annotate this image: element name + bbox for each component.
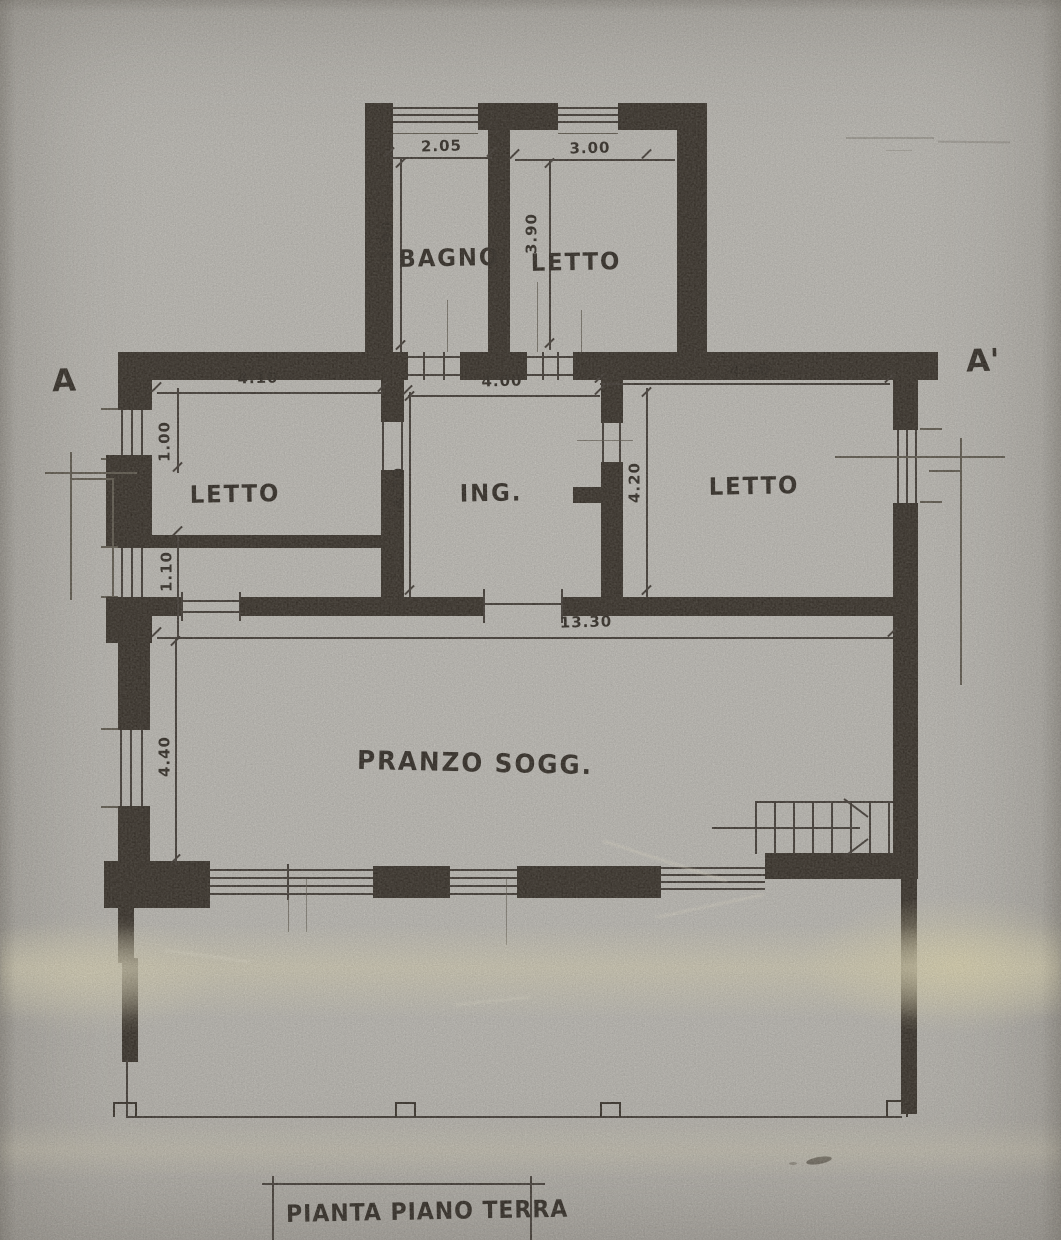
paper-edge-shadow bbox=[1041, 0, 1061, 1240]
door-letto-top-line bbox=[527, 356, 573, 358]
section-line-right bbox=[835, 456, 1005, 458]
dim-line bbox=[157, 637, 893, 639]
ink-smudge bbox=[789, 1162, 797, 1165]
section-line-right bbox=[929, 470, 962, 472]
paper-crease bbox=[165, 949, 249, 963]
extension-line bbox=[306, 879, 307, 932]
sheet-title: PIANTA PIANO TERRA bbox=[286, 1195, 569, 1228]
wall-pranzo-north-left bbox=[240, 597, 483, 616]
window-left-1-line bbox=[131, 410, 133, 460]
extension-line bbox=[288, 898, 289, 932]
section-line-right bbox=[960, 438, 962, 685]
window-left-1-sill bbox=[101, 408, 118, 410]
door-bagno-line bbox=[408, 374, 460, 376]
wall-left-terrace-2 bbox=[122, 958, 138, 1062]
window-right-line bbox=[915, 430, 917, 503]
window-left-2-line bbox=[141, 548, 143, 598]
terrace-post bbox=[113, 1102, 137, 1117]
dim-line bbox=[175, 637, 177, 866]
window-left-2-sill bbox=[101, 546, 118, 548]
wall-left-1 bbox=[118, 352, 152, 410]
paper-edge-shadow bbox=[0, 0, 16, 1240]
extension-line bbox=[537, 282, 538, 352]
paper-crease bbox=[455, 996, 530, 1006]
wall-left-terrace-1 bbox=[118, 905, 134, 963]
window-bagno-line bbox=[393, 121, 478, 123]
dim-line bbox=[600, 383, 890, 385]
ink-smudge bbox=[806, 1155, 833, 1166]
window-bagno-sill bbox=[393, 133, 478, 134]
window-letto-top-line bbox=[558, 114, 618, 116]
dim-line bbox=[177, 535, 179, 638]
opening-ing-pranzo-jamb bbox=[483, 589, 485, 623]
section-marker-a: A bbox=[51, 366, 76, 398]
window-left-1-line bbox=[141, 410, 143, 460]
extension-line bbox=[447, 300, 448, 352]
window-bottom-1-mullion bbox=[287, 864, 289, 900]
dim-letto-top-width: 3.00 bbox=[562, 140, 618, 156]
wall-right-lower bbox=[901, 879, 917, 1114]
dim-tick bbox=[641, 149, 652, 160]
room-label-letto-right: LETTO bbox=[706, 473, 801, 499]
window-bagno-line bbox=[393, 107, 478, 109]
window-letto-top-line bbox=[558, 107, 618, 109]
stairs-top-edge bbox=[755, 801, 893, 803]
wall-extension-top-center bbox=[478, 103, 558, 130]
room-label-letto-top: LETTO bbox=[528, 249, 623, 275]
title-box-left bbox=[272, 1176, 274, 1240]
wall-bottom-1 bbox=[373, 866, 450, 898]
terrace-post bbox=[395, 1102, 416, 1117]
wall-bottom-2 bbox=[517, 866, 661, 898]
wall-corner-bottom-left bbox=[104, 861, 210, 908]
window-bottom-3-line bbox=[661, 867, 765, 869]
window-bottom-1-line bbox=[210, 869, 373, 871]
door-bagno-jamb bbox=[443, 352, 445, 380]
wall-left-3 bbox=[118, 806, 150, 868]
window-left-3-line bbox=[130, 730, 132, 808]
wall-bagno-letto-divider bbox=[488, 130, 510, 352]
dim-line bbox=[408, 395, 600, 397]
paper-crease bbox=[0, 1120, 1061, 1180]
stair-tread bbox=[869, 801, 871, 854]
window-bottom-1-line bbox=[210, 885, 373, 887]
paper-crease bbox=[656, 894, 764, 919]
wall-extension-right bbox=[677, 103, 707, 355]
window-right-sill bbox=[920, 428, 942, 430]
dim-letto-right-width: 4.90 bbox=[718, 362, 782, 379]
section-line-left bbox=[112, 478, 114, 596]
dim-pranzo-depth: 4.40 bbox=[158, 734, 173, 780]
wall-extension-top-right bbox=[618, 103, 678, 130]
window-bottom-3-line bbox=[661, 888, 765, 890]
dim-tick bbox=[151, 627, 162, 638]
wall-pranzo-north-right bbox=[563, 597, 917, 616]
dim-line bbox=[409, 392, 411, 597]
window-left-3-sill bbox=[101, 806, 118, 808]
pencil-mark bbox=[886, 150, 912, 151]
window-left-3-sill bbox=[101, 728, 118, 730]
dim-letto-left-width: 4.10 bbox=[226, 370, 290, 387]
dim-bagno-depth: 3.90 bbox=[381, 218, 396, 264]
pencil-mark bbox=[846, 137, 934, 139]
window-letto-top-sill bbox=[558, 133, 618, 134]
stair-arrow-shaft bbox=[712, 827, 860, 829]
window-bottom-1-line bbox=[210, 893, 373, 895]
section-line-left bbox=[72, 478, 114, 480]
wall-ing-letto-right-lower bbox=[601, 462, 623, 597]
window-right-sill bbox=[920, 501, 942, 503]
section-marker-a-prime: A' bbox=[965, 345, 1000, 377]
window-right-line bbox=[906, 430, 908, 503]
dim-line bbox=[157, 392, 383, 394]
extension-line bbox=[577, 440, 633, 441]
extension-line bbox=[506, 879, 507, 945]
door-letto-top-jamb bbox=[557, 352, 559, 380]
door-pranzo-jamb bbox=[181, 592, 183, 621]
section-line-left bbox=[70, 452, 72, 600]
dim-letto-right-depth: 4.20 bbox=[628, 460, 643, 506]
dim-ingresso-depth: 4.20 bbox=[392, 465, 407, 511]
window-left-3-line bbox=[120, 730, 122, 808]
window-bagno-line bbox=[393, 114, 478, 116]
window-bottom-1-line bbox=[210, 877, 373, 879]
wall-ing-stub bbox=[573, 487, 601, 503]
door-letto-left-line bbox=[382, 422, 384, 470]
door-bagno-line bbox=[408, 356, 460, 358]
door-letto-left-line bbox=[401, 422, 403, 470]
paper-edge-shadow bbox=[0, 0, 1061, 12]
dim-line bbox=[646, 388, 648, 597]
section-line-left bbox=[45, 472, 137, 474]
window-right-line bbox=[897, 430, 899, 503]
window-bottom-3-line bbox=[661, 874, 765, 876]
terrace-bottom-edge bbox=[126, 1116, 902, 1118]
terrace-post bbox=[886, 1100, 908, 1117]
room-label-bagno: BAGNO bbox=[398, 245, 490, 271]
room-label-letto-left: LETTO bbox=[187, 481, 282, 507]
window-bottom-2-line bbox=[450, 869, 517, 871]
dim-tick bbox=[509, 149, 520, 160]
room-label-pranzo: PRANZO SOGG. bbox=[357, 748, 547, 778]
wall-left-2 bbox=[118, 640, 150, 730]
door-letto-right-line bbox=[602, 423, 604, 462]
wall-right-1 bbox=[893, 363, 918, 430]
terrace-post bbox=[600, 1102, 621, 1117]
paper-crease bbox=[800, 895, 1061, 1035]
window-left-2-line bbox=[131, 548, 133, 598]
title-box-top bbox=[262, 1183, 545, 1185]
dim-bagno-width: 2.05 bbox=[414, 138, 469, 154]
wall-letto-left-south bbox=[152, 535, 383, 548]
window-left-2-line bbox=[121, 548, 123, 598]
door-letto-top-line bbox=[527, 374, 573, 376]
door-pranzo-line bbox=[183, 611, 240, 613]
door-pranzo-line bbox=[183, 600, 240, 602]
window-bottom-3-line bbox=[661, 881, 765, 883]
wall-right-2 bbox=[893, 503, 918, 879]
dim-line bbox=[515, 159, 675, 161]
extension-line bbox=[581, 310, 582, 352]
dim-line bbox=[177, 388, 179, 473]
window-left-1-line bbox=[121, 410, 123, 460]
floor-plan-sheet: 2.05 3.00 3.90 3.90 4.10 4.00 4.90 4.20 … bbox=[0, 0, 1061, 1240]
pencil-mark bbox=[938, 141, 1010, 143]
dim-overall-width: 13.30 bbox=[548, 614, 624, 631]
stair-tread bbox=[888, 801, 890, 854]
dim-corridor: 1.10 bbox=[160, 549, 175, 595]
door-letto-top-jamb bbox=[542, 352, 544, 380]
opening-ing-pranzo-line bbox=[483, 603, 563, 605]
dim-tick bbox=[151, 382, 162, 393]
door-bagno-jamb bbox=[423, 352, 425, 380]
window-letto-top-line bbox=[558, 121, 618, 123]
door-letto-right-line bbox=[619, 423, 621, 462]
window-left-3-line bbox=[141, 730, 143, 808]
wall-left-pier-2 bbox=[106, 597, 152, 643]
room-label-ingresso: ING. bbox=[445, 480, 537, 506]
dim-left-window: 1.00 bbox=[158, 419, 173, 465]
paper-crease bbox=[0, 915, 220, 1035]
dim-ingresso-width: 4.00 bbox=[470, 373, 534, 390]
